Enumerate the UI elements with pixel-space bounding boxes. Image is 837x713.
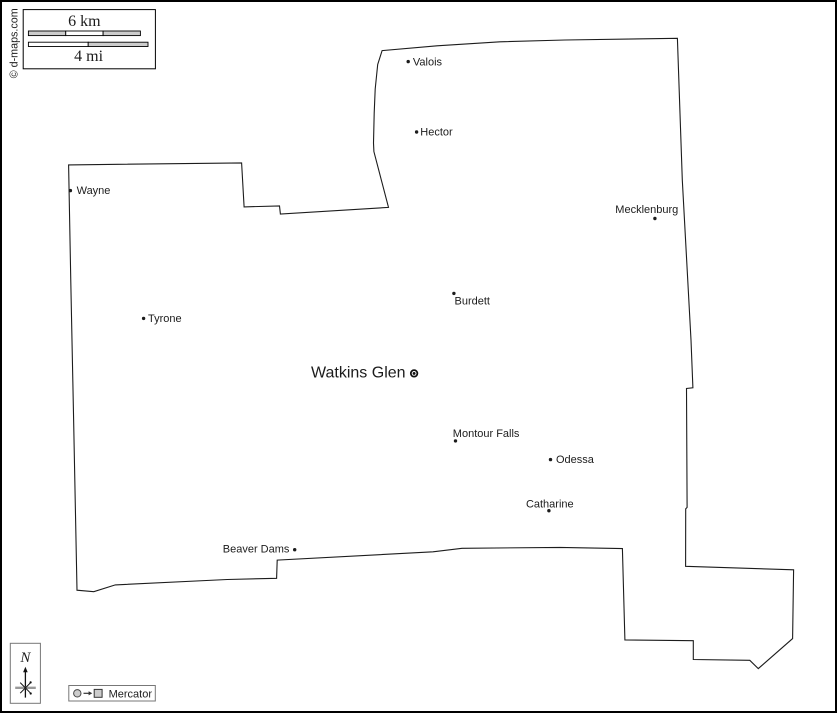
svg-text:Montour Falls: Montour Falls	[453, 428, 520, 440]
svg-text:Hector: Hector	[420, 127, 453, 139]
svg-text:Watkins Glen: Watkins Glen	[311, 364, 406, 381]
svg-text:Beaver Dams: Beaver Dams	[223, 544, 290, 556]
svg-text:Odessa: Odessa	[556, 454, 595, 466]
svg-text:Catharine: Catharine	[526, 498, 574, 510]
svg-text:© d-maps.com: © d-maps.com	[8, 8, 20, 78]
svg-text:N: N	[19, 650, 31, 666]
svg-text:Wayne: Wayne	[77, 185, 111, 197]
svg-text:4 mi: 4 mi	[74, 48, 103, 65]
svg-text:Tyrone: Tyrone	[148, 313, 182, 325]
svg-text:Mercator: Mercator	[109, 688, 153, 700]
svg-text:Burdett: Burdett	[455, 295, 490, 307]
svg-text:Valois: Valois	[413, 56, 443, 68]
svg-text:6 km: 6 km	[68, 13, 101, 30]
svg-text:Mecklenburg: Mecklenburg	[615, 204, 678, 216]
